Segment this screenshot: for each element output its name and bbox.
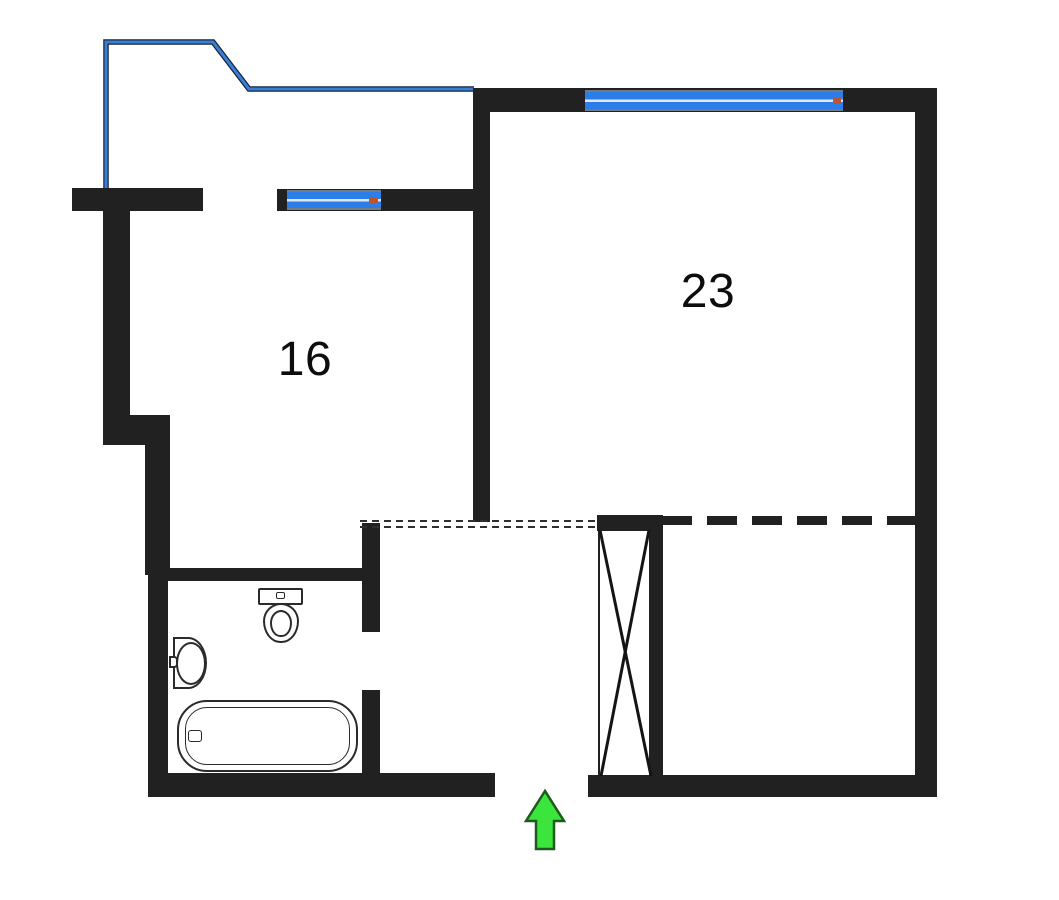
wall-right: [915, 88, 937, 797]
wall-bathroom-left: [148, 568, 168, 797]
wall-corridor-lower: [362, 690, 380, 775]
toilet-bowl-inner: [270, 610, 292, 637]
wall-left-mid: [145, 443, 170, 575]
wall-room23-left: [473, 88, 490, 522]
wall-corridor-upper: [362, 523, 380, 632]
wardrobe-cross-icon: [595, 514, 665, 779]
room-label-23: 23: [673, 266, 743, 318]
wall-top-left-segment: [72, 188, 203, 211]
window-detail-mark: [833, 98, 841, 104]
bathtub-inner: [185, 707, 350, 765]
wall-left-step: [103, 415, 170, 445]
floor-plan: 16 23: [0, 0, 1059, 900]
bathtub-faucet: [188, 730, 202, 742]
toilet-button: [276, 592, 285, 599]
partition-dashed-thin: [360, 520, 598, 528]
wall-left-upper: [103, 211, 130, 444]
entrance-arrow-icon: [519, 787, 571, 853]
wall-bottom-left: [148, 773, 495, 797]
window-room23: [585, 90, 843, 111]
balcony-outline: [100, 36, 480, 196]
sink-basin: [176, 642, 206, 685]
window-room16: [287, 190, 381, 210]
sink-tap: [169, 656, 178, 668]
partition-dashed-bold: [662, 516, 915, 525]
room-label-16: 16: [270, 334, 340, 386]
window-detail-mark: [369, 197, 378, 203]
wall-bathroom-top: [160, 568, 363, 581]
